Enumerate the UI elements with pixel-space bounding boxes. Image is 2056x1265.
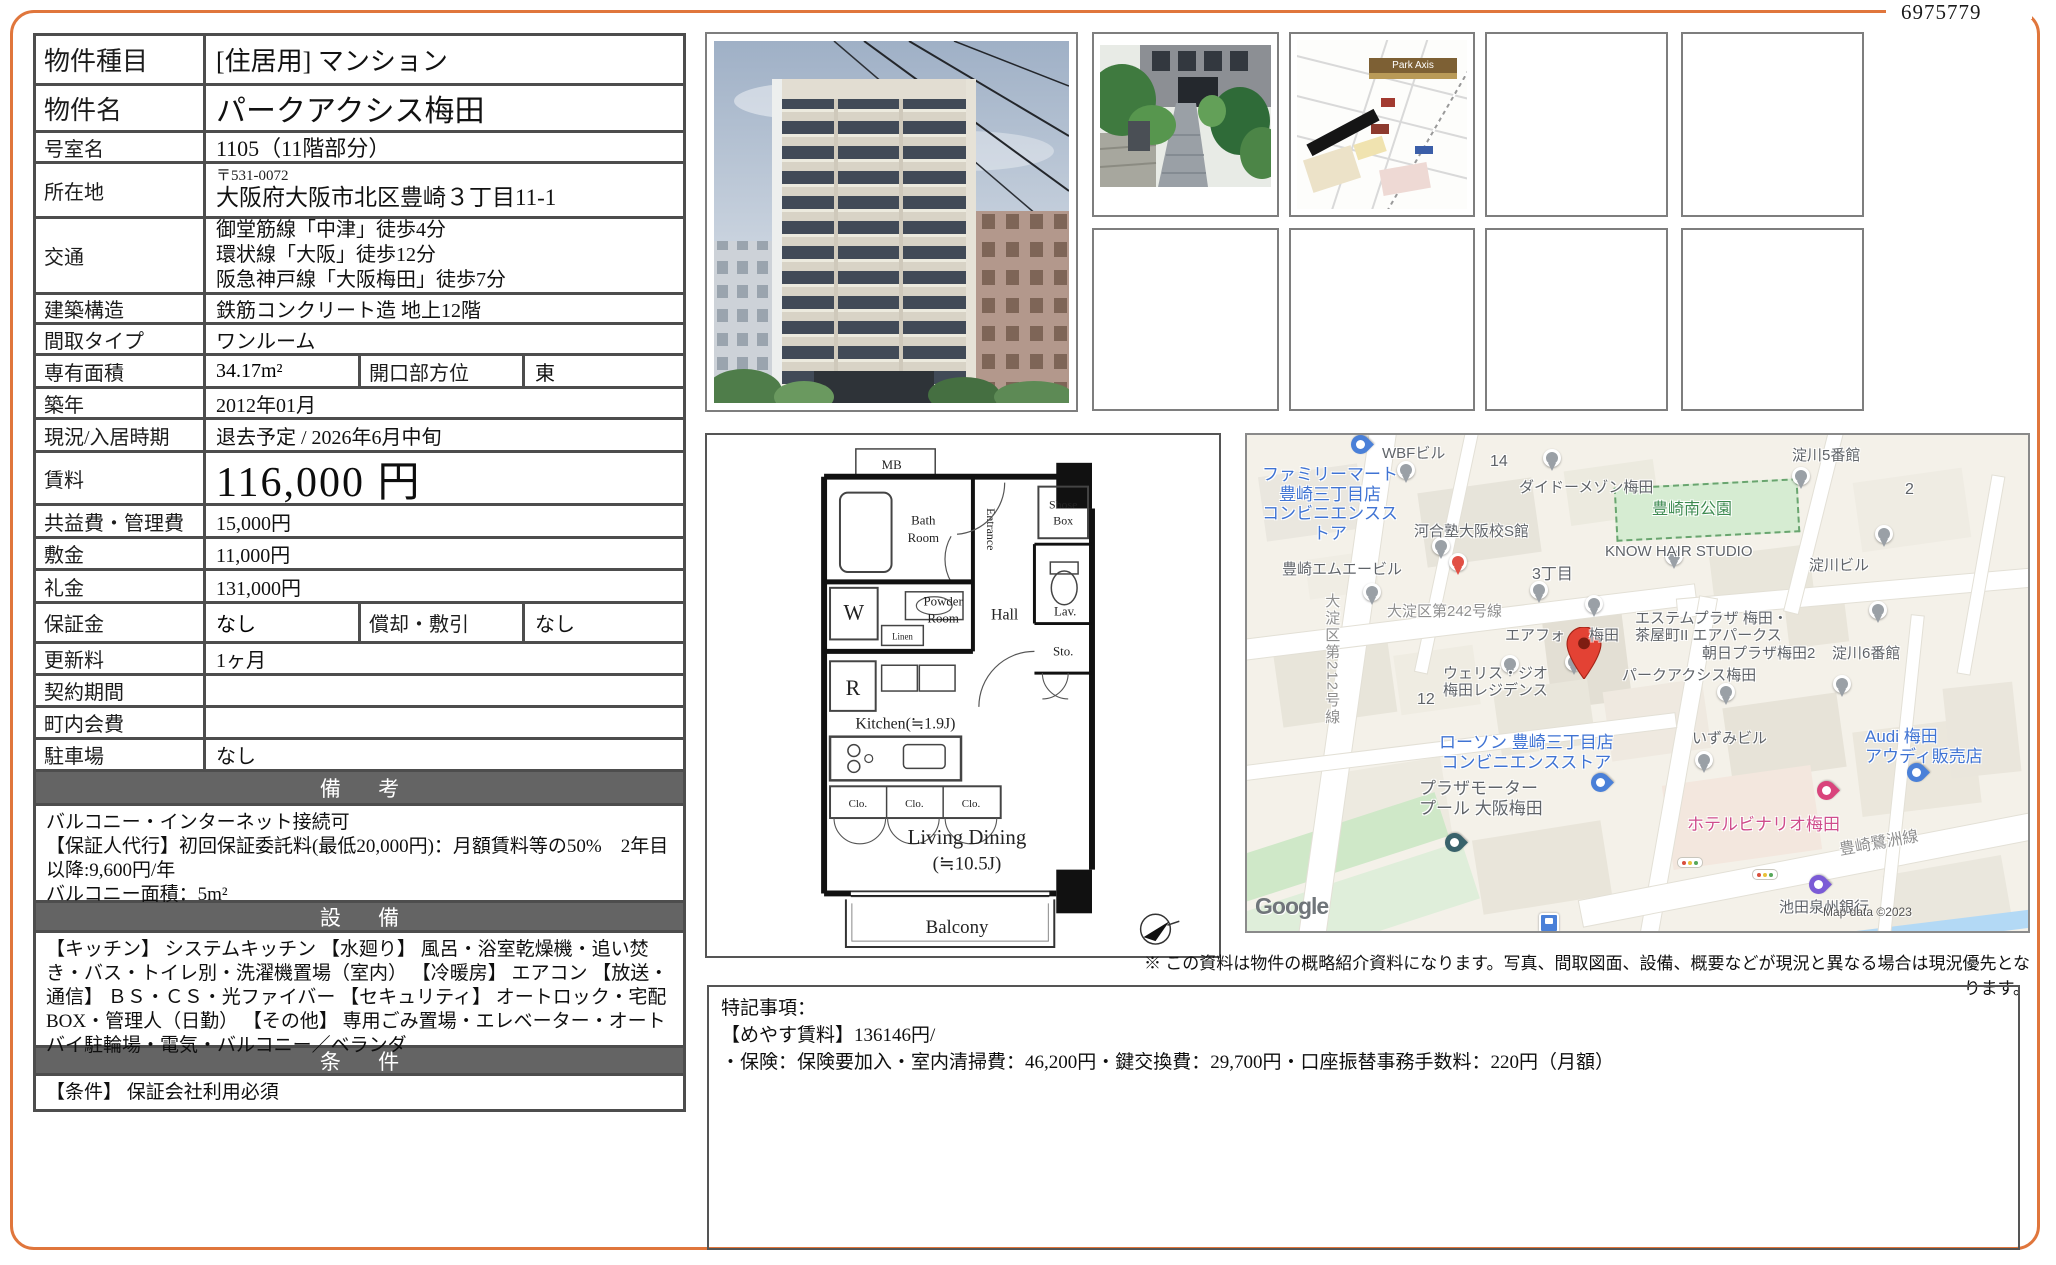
map-label: 豊崎エムエービル: [1282, 561, 1402, 578]
row-value: 1ヶ月: [206, 644, 683, 673]
remarks-line: 【保証人代行】初回保証委託料(最低20,000円)：月額賃料等の50% 2年目以…: [46, 835, 673, 883]
fp-label-living: (≒10.5J): [933, 854, 1002, 875]
poi-pin-icon: [1792, 467, 1810, 485]
fp-label-shoebox: Box: [1053, 513, 1073, 527]
row-label: 現況/入居時期: [36, 420, 206, 450]
fp-label-entrance: Entrance: [984, 508, 998, 550]
map-label: 淀川6番館: [1832, 645, 1900, 662]
fp-label-linen: Linen: [892, 631, 913, 641]
access-map-frame: Park Axis: [1289, 32, 1475, 217]
map-label: 12: [1417, 691, 1435, 709]
empty-photo-frame: [1485, 228, 1668, 411]
empty-photo-frame: [1681, 228, 1864, 411]
map-label: Audi 梅田 アウディ販売店: [1865, 727, 1983, 766]
table-row: 物件名 パークアクシス梅田: [36, 83, 683, 130]
map-label: 3丁目: [1532, 566, 1573, 584]
table-row: 間取タイプ ワンルーム: [36, 322, 683, 353]
fp-label-powder: Room: [927, 612, 958, 626]
special-notes-line: ・保険：保険要加入・室内清掃費：46,200円・鍵交換費：29,700円・口座振…: [721, 1049, 2006, 1076]
row-label: 専有面積: [36, 356, 206, 386]
hospital-pin-icon: [1449, 553, 1467, 571]
row-label: 号室名: [36, 133, 206, 161]
fp-label-mb: MB: [882, 458, 902, 472]
row-label: 築年: [36, 389, 206, 417]
fp-label-closet: Clo.: [905, 798, 923, 810]
entrance-photo-frame: [1092, 32, 1279, 217]
map-label: パークアクシス梅田: [1622, 667, 1756, 684]
map-label: ローソン 豊崎三丁目店 コンビニエンスストア: [1439, 733, 1614, 772]
table-row: 保証金 なし 償却・敷引 なし: [36, 601, 683, 641]
map-label: 14: [1490, 453, 1508, 471]
table-row: 更新料 1ヶ月: [36, 641, 683, 673]
access-line: 環状線「大阪」徒歩12分: [216, 243, 436, 268]
table-row: 専有面積 34.17m² 開口部方位 東: [36, 353, 683, 386]
table-row: 礼金 131,000円: [36, 568, 683, 601]
facing-value: 東: [525, 356, 683, 386]
map-label: 淀川ビル: [1809, 557, 1869, 574]
ref-number: 6975779: [1901, 0, 1982, 25]
equipment-body: 【キッチン】 システムキッチン 【水廻り】 風呂・浴室乾燥機・追い焚き・バス・ト…: [36, 930, 683, 1045]
row-value: 〒531-0072 大阪府大阪市北区豊崎３丁目11-1: [206, 164, 683, 216]
fp-label-kitchen: Kitchen(≒1.9J): [855, 716, 955, 733]
empty-photo-frame: [1681, 32, 1864, 217]
row-value: [住居用] マンション: [206, 36, 683, 83]
remarks-line: バルコニー・インターネット接続可: [46, 811, 673, 835]
row-value: パークアクシス梅田: [206, 86, 683, 130]
poi-pin-icon: [1363, 583, 1381, 601]
fp-label-bath: Bath: [911, 513, 936, 527]
row-label: 契約期間: [36, 676, 206, 705]
fp-label-shoebox: Shose: [1049, 497, 1077, 511]
fp-label-closet: Clo.: [962, 798, 980, 810]
road-label: 大淀区第242号線: [1387, 603, 1502, 620]
google-map[interactable]: ファミリーマート 豊崎三丁目店 コンビニエンスストア WBFビル 14 ダイドー…: [1245, 433, 2030, 933]
table-row: 共益費・管理費 15,000円: [36, 503, 683, 536]
fp-label-powder: Powder: [923, 595, 963, 609]
empty-photo-frame: [1485, 32, 1668, 217]
row-label: 敷金: [36, 539, 206, 568]
table-row: 契約期間: [36, 673, 683, 705]
transit-station-icon: [1539, 913, 1559, 933]
access-line: 阪急神戸線「大阪梅田」徒歩7分: [216, 268, 506, 292]
map-label: プラザモーター プール 大阪梅田: [1419, 779, 1543, 818]
row-label: 交通: [36, 219, 206, 292]
map-copyright: Map data ©2023: [1823, 905, 1912, 919]
access-line: 御堂筋線「中津」徒歩4分: [216, 219, 446, 243]
amortization-label: 償却・敷引: [358, 604, 525, 641]
guarantee-value: なし: [206, 604, 358, 641]
remarks-header: 備 考: [36, 769, 683, 803]
map-label: ファミリーマート 豊崎三丁目店 コンビニエンスストア: [1255, 465, 1405, 543]
row-value: 1105（11階部分）: [206, 133, 683, 161]
traffic-light-icon: [1677, 857, 1703, 868]
fp-label-balcony: Balcony: [926, 917, 989, 938]
floor-plan-frame: MB Bath Room W Linen Powder Room: [705, 433, 1221, 958]
map-label: WBFビル: [1382, 445, 1445, 462]
special-notes-line: 【めやす賃料】136146円/: [721, 1022, 2006, 1049]
fp-label-fridge: R: [846, 676, 861, 700]
poi-pin-icon: [1717, 683, 1735, 701]
poi-pin-icon: [1833, 675, 1851, 693]
road-label: 大淀区第212号線: [1323, 593, 1340, 726]
property-flyer-page: 6975779 物件種目 [住居用] マンション 物件名 パークアクシス梅田 号…: [0, 0, 2056, 1265]
row-value: なし: [206, 740, 683, 769]
building-photo-frame: [705, 32, 1078, 412]
floor-plan-drawing: MB Bath Room W Linen Powder Room: [707, 435, 1219, 956]
row-label: 物件種目: [36, 36, 206, 83]
table-row: 物件種目 [住居用] マンション: [36, 36, 683, 83]
map-label: エアフォ: [1505, 627, 1565, 644]
poi-pin-icon: [1695, 751, 1713, 769]
hotel-pin-icon: [1813, 777, 1840, 804]
facing-label: 開口部方位: [358, 356, 525, 386]
row-value: 御堂筋線「中津」徒歩4分 環状線「大阪」徒歩12分 阪急神戸線「大阪梅田」徒歩7…: [206, 219, 683, 292]
google-logo: Google: [1255, 893, 1328, 920]
fp-label-bath: Room: [908, 531, 939, 545]
map-label: ダイドーメゾン梅田: [1519, 479, 1653, 496]
row-label: 共益費・管理費: [36, 506, 206, 536]
table-row: 築年 2012年01月: [36, 386, 683, 417]
map-label: 朝日プラザ梅田2: [1702, 645, 1815, 662]
row-label: 所在地: [36, 164, 206, 216]
table-row: 賃料 116,000 円: [36, 450, 683, 503]
row-value: [206, 676, 683, 705]
row-label: 駐車場: [36, 740, 206, 769]
special-notes-box: 特記事項： 【めやす賃料】136146円/ ・保険：保険要加入・室内清掃費：46…: [707, 985, 2020, 1250]
map-label: 淀川5番館: [1792, 447, 1860, 464]
map-label: いずみビル: [1692, 730, 1767, 747]
map-label: エステムプラザ 梅田・ 茶屋町II エアパークス: [1635, 610, 1788, 645]
traffic-light-icon: [1752, 869, 1778, 880]
map-label: ウェリス・ジオ 梅田レジデンス: [1443, 665, 1548, 700]
empty-photo-frame: [1092, 228, 1279, 411]
row-label: 町内会費: [36, 708, 206, 737]
map-label: ホテルビナリオ梅田: [1687, 815, 1840, 835]
fp-label-closet: Clo.: [849, 798, 867, 810]
row-value: 退去予定 / 2026年6月中旬: [206, 420, 683, 450]
address-text: 大阪府大阪市北区豊崎３丁目11-1: [216, 185, 556, 211]
row-label: 保証金: [36, 604, 206, 641]
row-label: 建築構造: [36, 295, 206, 322]
area-value: 34.17m²: [206, 356, 358, 386]
table-row: 現況/入居時期 退去予定 / 2026年6月中旬: [36, 417, 683, 450]
row-label: 賃料: [36, 453, 206, 503]
map-label: 河合塾大阪校S館: [1414, 523, 1529, 540]
row-value: 2012年01月: [206, 389, 683, 417]
amortization-value: なし: [525, 604, 683, 641]
special-notes-title: 特記事項：: [721, 995, 2006, 1022]
table-row: 交通 御堂筋線「中津」徒歩4分 環状線「大阪」徒歩12分 阪急神戸線「大阪梅田」…: [36, 216, 683, 292]
fp-label-hall: Hall: [991, 607, 1019, 624]
entrance-photo: [1100, 45, 1271, 187]
row-value: ワンルーム: [206, 325, 683, 353]
park-axis-badge: Park Axis: [1369, 58, 1457, 73]
access-map-thumbnail: Park Axis: [1297, 40, 1467, 209]
row-label: 礼金: [36, 571, 206, 601]
fp-label-living: Living Dining: [908, 825, 1027, 849]
row-value: 鉄筋コンクリート造 地上12階: [206, 295, 683, 322]
row-value: 15,000円: [206, 506, 683, 536]
table-row: 号室名 1105（11階部分）: [36, 130, 683, 161]
building-exterior-photo: [714, 41, 1069, 403]
conditions-body: 【条件】 保証会社利用必須: [36, 1073, 683, 1109]
table-row: 所在地 〒531-0072 大阪府大阪市北区豊崎３丁目11-1: [36, 161, 683, 216]
remarks-body: バルコニー・インターネット接続可 【保証人代行】初回保証委託料(最低20,000…: [36, 803, 683, 900]
fp-label-washer: W: [844, 601, 865, 625]
table-row: 町内会費: [36, 705, 683, 737]
poi-pin-icon: [1585, 595, 1603, 613]
poi-pin-icon: [1543, 449, 1561, 467]
poi-pin-icon: [1875, 525, 1893, 543]
map-label: 梅田: [1589, 627, 1619, 644]
property-table: 物件種目 [住居用] マンション 物件名 パークアクシス梅田 号室名 1105（…: [33, 33, 686, 1112]
rent-value: 116,000 円: [206, 453, 683, 503]
row-label: 更新料: [36, 644, 206, 673]
row-label: 物件名: [36, 86, 206, 130]
table-row: 敷金 11,000円: [36, 536, 683, 568]
empty-photo-frame: [1289, 228, 1475, 411]
row-value: 11,000円: [206, 539, 683, 568]
fp-label-storage: Sto.: [1053, 644, 1073, 658]
fp-label-lavatory: Lav.: [1054, 605, 1076, 619]
map-label: KNOW HAIR STUDIO: [1605, 543, 1753, 560]
poi-pin-icon: [1869, 601, 1887, 619]
map-label: 2: [1905, 481, 1914, 499]
row-value: [206, 708, 683, 737]
row-value: 131,000円: [206, 571, 683, 601]
postal-code: 〒531-0072: [216, 168, 289, 185]
lawson-pin-icon: [1587, 769, 1614, 796]
table-row: 建築構造 鉄筋コンクリート造 地上12階: [36, 292, 683, 322]
map-label: 豊崎南公園: [1652, 501, 1732, 519]
row-label: 間取タイプ: [36, 325, 206, 353]
table-row: 駐車場 なし: [36, 737, 683, 769]
